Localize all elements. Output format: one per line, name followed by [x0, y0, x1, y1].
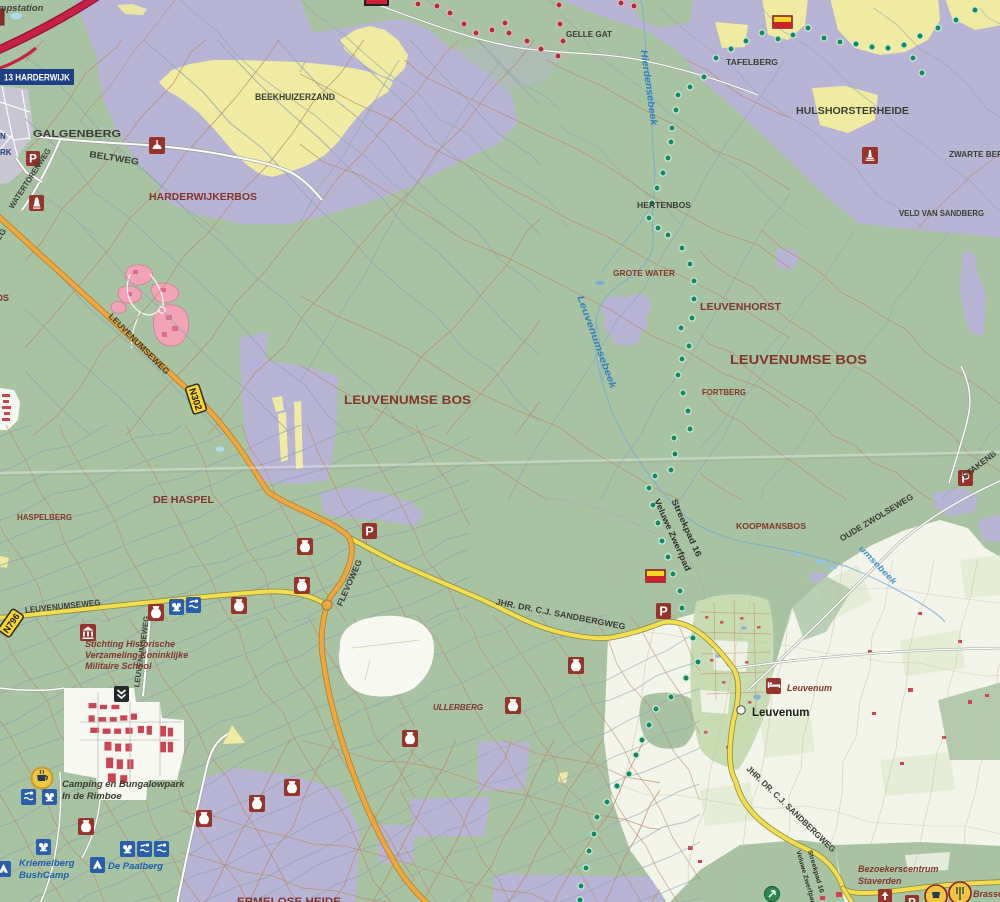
svg-text:In de Rimboe: In de Rimboe: [62, 791, 122, 802]
svg-text:P: P: [365, 525, 373, 539]
svg-text:P: P: [659, 605, 667, 619]
svg-text:ULLERBERG: ULLERBERG: [433, 702, 483, 712]
svg-text:N: N: [0, 132, 6, 141]
svg-text:GELLE GAT: GELLE GAT: [566, 29, 613, 39]
svg-text:HULSHORSTERHEIDE: HULSHORSTERHEIDE: [796, 105, 909, 117]
svg-text:Verzameling Koninklijke: Verzameling Koninklijke: [85, 650, 188, 660]
svg-text:13 HARDERWIJK: 13 HARDERWIJK: [4, 73, 70, 84]
svg-text:Leuvenum: Leuvenum: [787, 683, 832, 693]
svg-text:Kriemelberg: Kriemelberg: [19, 858, 75, 869]
svg-text:VELD VAN SANDBERG: VELD VAN SANDBERG: [899, 209, 984, 218]
svg-text:OS: OS: [0, 293, 9, 303]
svg-text:LEUVENUMSE BOS: LEUVENUMSE BOS: [344, 393, 471, 407]
svg-text:Stichting Historische: Stichting Historische: [85, 639, 175, 649]
svg-text:GALGENBERG: GALGENBERG: [33, 129, 121, 140]
svg-text:KOOPMANSBOS: KOOPMANSBOS: [736, 521, 806, 531]
svg-text:Militaire School: Militaire School: [85, 661, 152, 671]
svg-text:mpstation: mpstation: [0, 3, 44, 14]
svg-text:GROTE WATER: GROTE WATER: [613, 268, 675, 278]
svg-text:RK: RK: [0, 148, 12, 157]
svg-text:HASPELBERG: HASPELBERG: [17, 512, 72, 522]
svg-text:HERTENBOS: HERTENBOS: [637, 200, 691, 210]
svg-text:FORTBERG: FORTBERG: [702, 387, 746, 397]
svg-text:ZWARTE BER: ZWARTE BER: [949, 149, 1000, 159]
svg-text:ERMELOSE HEIDE: ERMELOSE HEIDE: [237, 896, 341, 902]
svg-text:HARDERWIJKERBOS: HARDERWIJKERBOS: [149, 191, 257, 203]
svg-text:Brasser: Brasser: [973, 889, 1000, 899]
svg-text:P: P: [908, 898, 916, 902]
svg-text:Leuvenum: Leuvenum: [752, 707, 810, 719]
svg-text:LEUVENHORST: LEUVENHORST: [700, 302, 781, 313]
svg-text:Camping en Bungalowpark: Camping en Bungalowpark: [62, 779, 185, 790]
svg-text:TAFELBERG: TAFELBERG: [726, 57, 778, 67]
svg-text:BEEKHUIZERZAND: BEEKHUIZERZAND: [255, 92, 335, 103]
svg-text:Bezoekerscentrum: Bezoekerscentrum: [858, 864, 939, 874]
svg-text:Staverden: Staverden: [858, 876, 902, 886]
svg-text:DE HASPEL: DE HASPEL: [153, 494, 215, 506]
svg-text:LEUVENUMSE BOS: LEUVENUMSE BOS: [730, 352, 867, 367]
svg-text:De Paalberg: De Paalberg: [108, 861, 163, 872]
svg-text:BushCamp: BushCamp: [19, 870, 69, 881]
